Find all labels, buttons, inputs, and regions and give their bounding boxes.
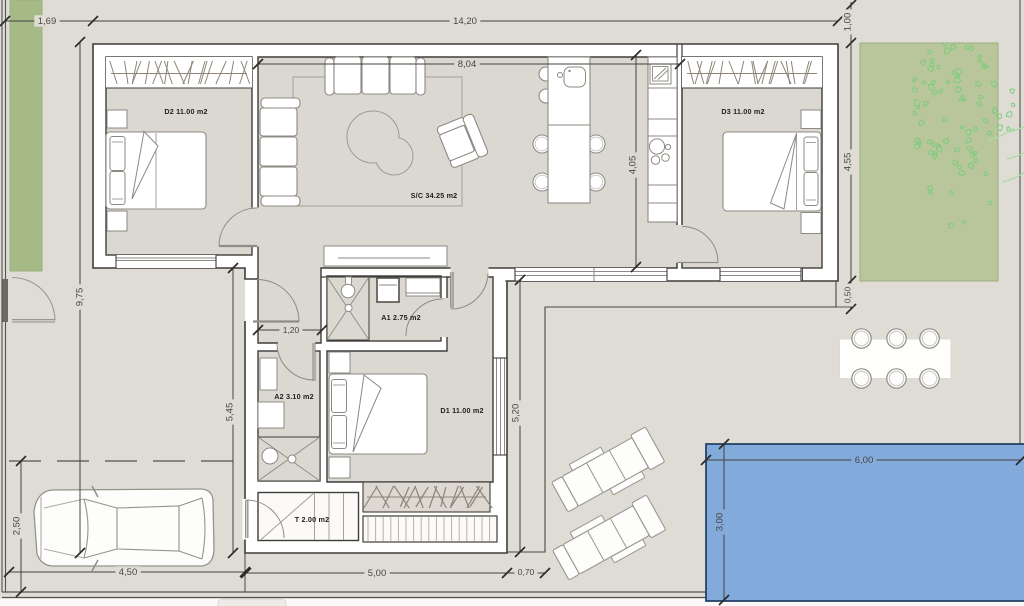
svg-text:4,50: 4,50 (119, 567, 138, 578)
svg-text:2,50: 2,50 (12, 517, 23, 536)
svg-text:A1 2.75 m2: A1 2.75 m2 (381, 313, 421, 322)
svg-text:4,05: 4,05 (628, 156, 639, 175)
svg-text:6,00: 6,00 (855, 455, 874, 466)
svg-text:8,04: 8,04 (458, 59, 477, 70)
svg-text:1,20: 1,20 (283, 325, 300, 335)
svg-text:T 2.00 m2: T 2.00 m2 (295, 515, 330, 524)
svg-text:5,00: 5,00 (368, 568, 387, 579)
svg-text:1,69: 1,69 (38, 16, 57, 27)
svg-text:5,20: 5,20 (511, 404, 522, 423)
svg-text:5,45: 5,45 (225, 403, 236, 422)
svg-text:14,20: 14,20 (453, 16, 477, 27)
svg-text:4,55: 4,55 (843, 153, 854, 172)
svg-text:D3 11.00 m2: D3 11.00 m2 (721, 107, 764, 116)
svg-text:9,75: 9,75 (75, 288, 86, 307)
svg-text:D2 11.00 m2: D2 11.00 m2 (164, 107, 207, 116)
svg-text:D1 11.00 m2: D1 11.00 m2 (440, 406, 483, 415)
svg-text:S/C 34.25 m2: S/C 34.25 m2 (411, 191, 458, 200)
svg-text:1,00: 1,00 (843, 13, 854, 32)
svg-text:0,50: 0,50 (842, 286, 852, 303)
svg-text:A2 3.10 m2: A2 3.10 m2 (274, 392, 314, 401)
svg-text:3,00: 3,00 (715, 513, 726, 532)
svg-text:0,70: 0,70 (518, 567, 535, 577)
